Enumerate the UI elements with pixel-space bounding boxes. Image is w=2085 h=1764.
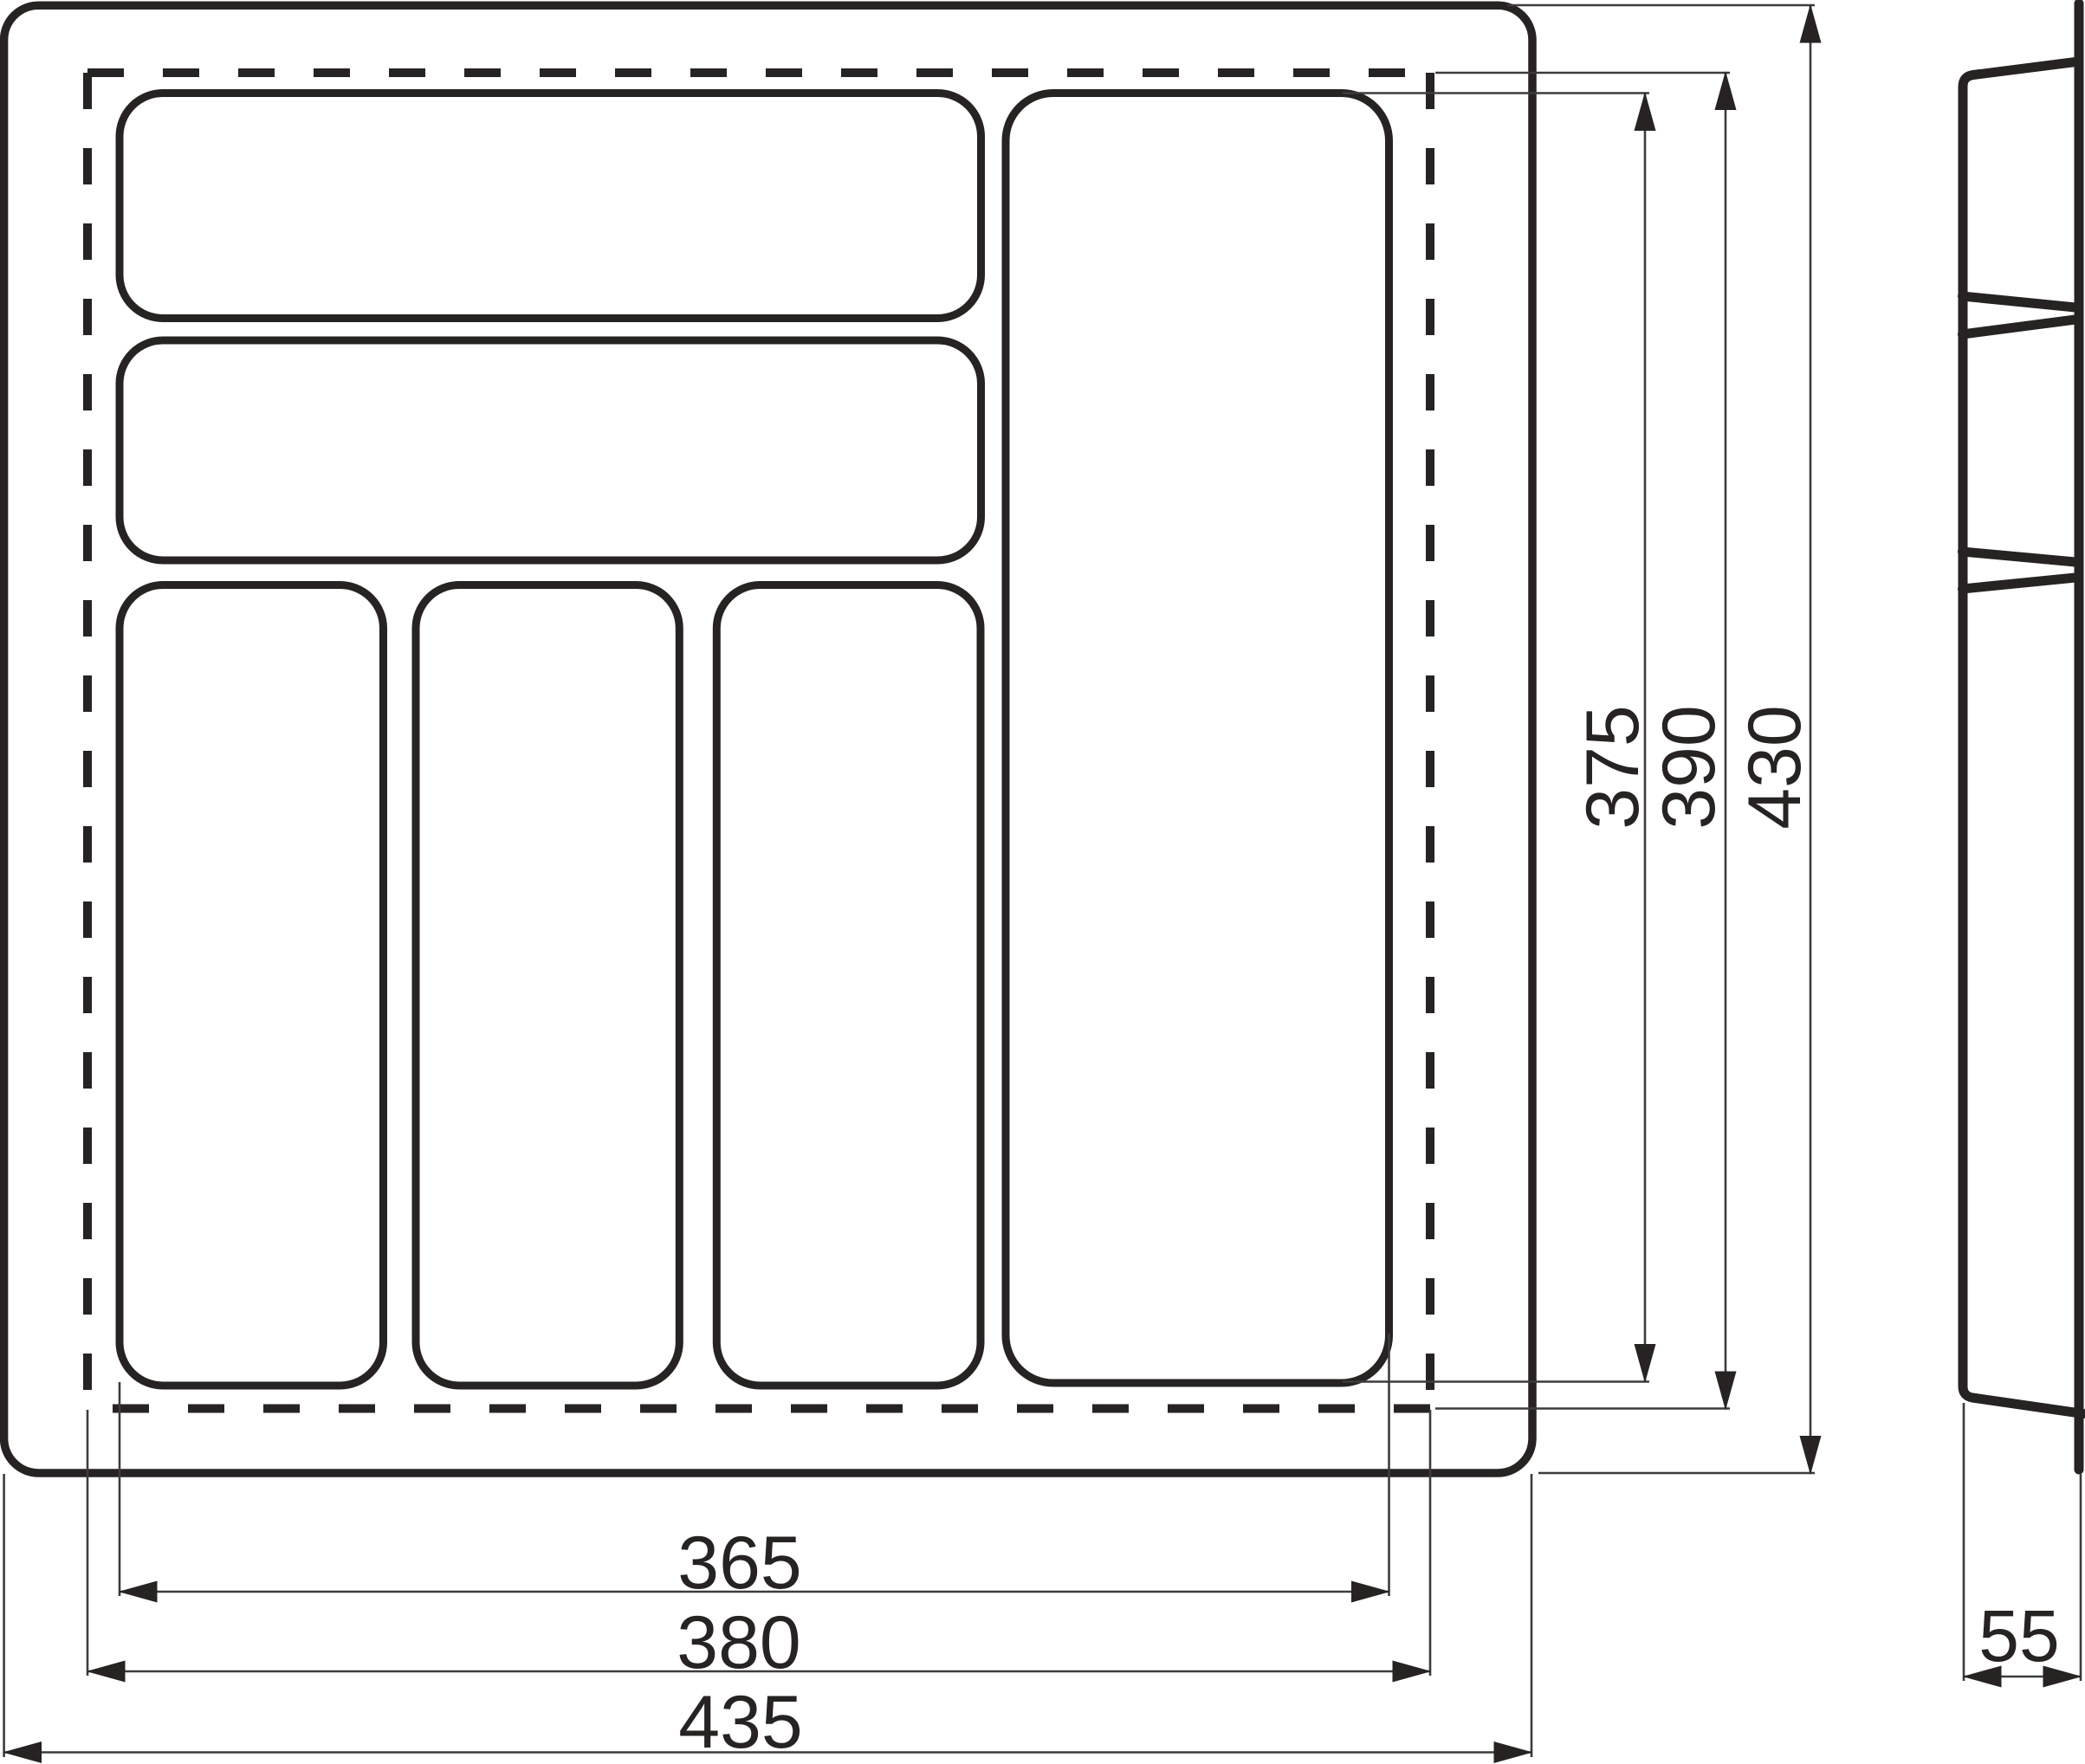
svg-text:365: 365	[677, 1522, 802, 1605]
svg-text:375: 375	[1571, 705, 1654, 830]
svg-text:435: 435	[678, 1681, 803, 1764]
svg-text:55: 55	[1978, 1595, 2059, 1677]
svg-text:380: 380	[677, 1601, 801, 1684]
svg-text:390: 390	[1648, 705, 1731, 830]
svg-text:430: 430	[1733, 705, 1816, 830]
